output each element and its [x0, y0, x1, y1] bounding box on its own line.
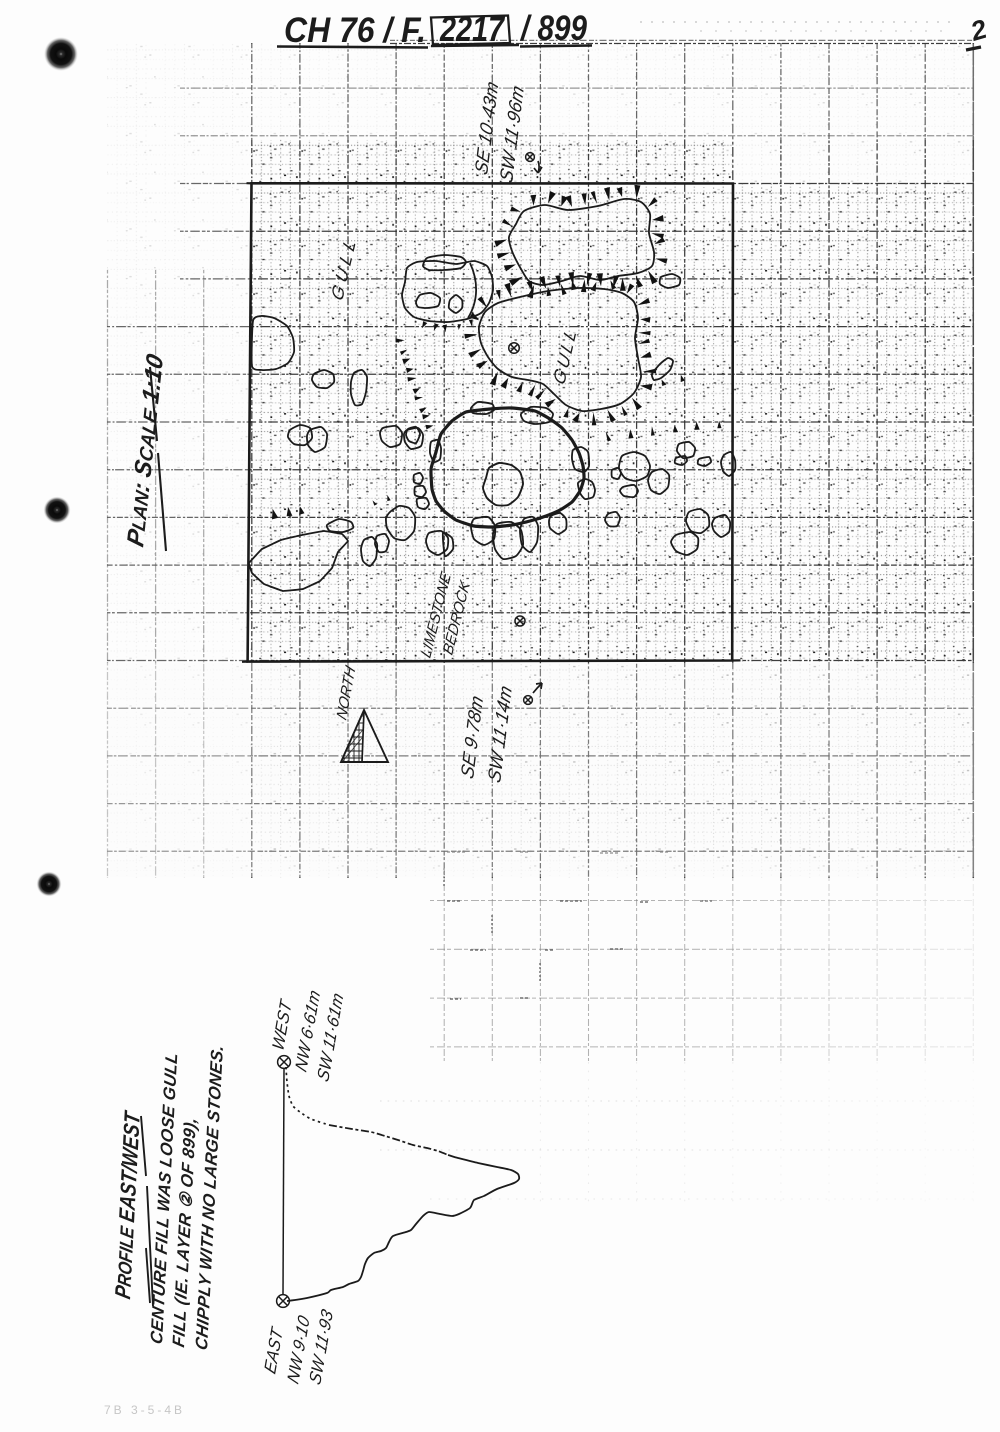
svg-text:SW 11·93: SW 11·93 [305, 1306, 337, 1388]
svg-text:WEST: WEST [268, 996, 295, 1054]
svg-text:CH 76 / F.: CH 76 / F. [284, 11, 426, 50]
svg-text:2: 2 [966, 14, 990, 47]
svg-text:PROFILE EAST/WEST: PROFILE EAST/WEST [110, 1108, 144, 1301]
svg-text:CHIPPLY WITH NO LARGE STONES.: CHIPPLY WITH NO LARGE STONES. [191, 1043, 227, 1352]
svg-text:EAST: EAST [260, 1323, 286, 1376]
svg-text:/ 899: / 899 [519, 9, 587, 48]
svg-text:7B 3-5-4B: 7B 3-5-4B [104, 1403, 185, 1417]
